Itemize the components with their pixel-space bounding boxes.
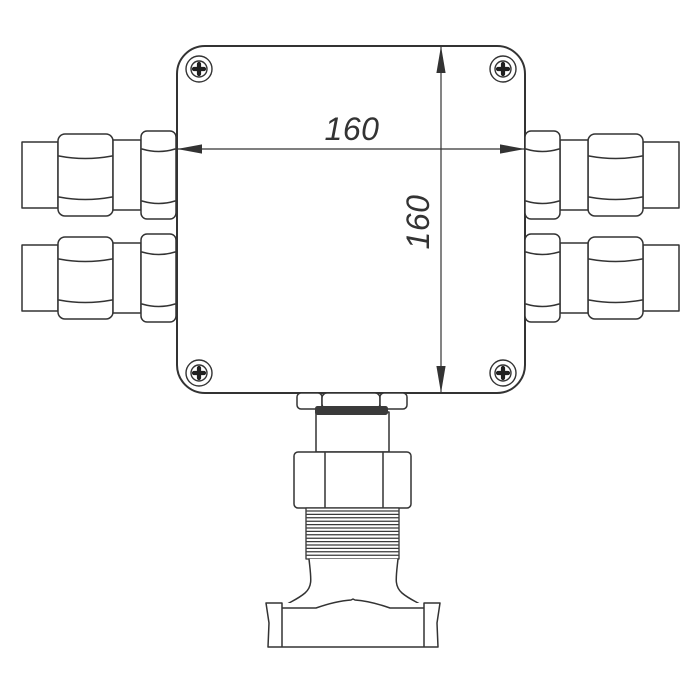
corner-screw-top-left <box>186 56 212 82</box>
height-dimension-label: 160 <box>400 195 436 250</box>
width-dimension-label: 160 <box>325 111 380 147</box>
corner-screw-bottom-right <box>490 360 516 386</box>
bottom-hex-nut <box>294 452 411 508</box>
cable-gland-lower-right <box>525 234 679 322</box>
junction-box-body <box>177 46 525 393</box>
bottom-connection <box>266 393 440 647</box>
clamp-base <box>266 599 440 647</box>
corner-screw-top-right <box>490 56 516 82</box>
technical-drawing-page: 160 160 <box>0 0 700 700</box>
cable-gland-upper-left <box>22 131 176 219</box>
seal-washer <box>315 406 388 415</box>
bottom-gland-body <box>316 412 389 452</box>
cable-gland-lower-left <box>22 234 176 322</box>
cable-gland-upper-right <box>525 131 679 219</box>
corner-screw-bottom-left <box>186 360 212 386</box>
threaded-stem <box>306 508 399 559</box>
junction-box-drawing: 160 160 <box>0 0 700 700</box>
